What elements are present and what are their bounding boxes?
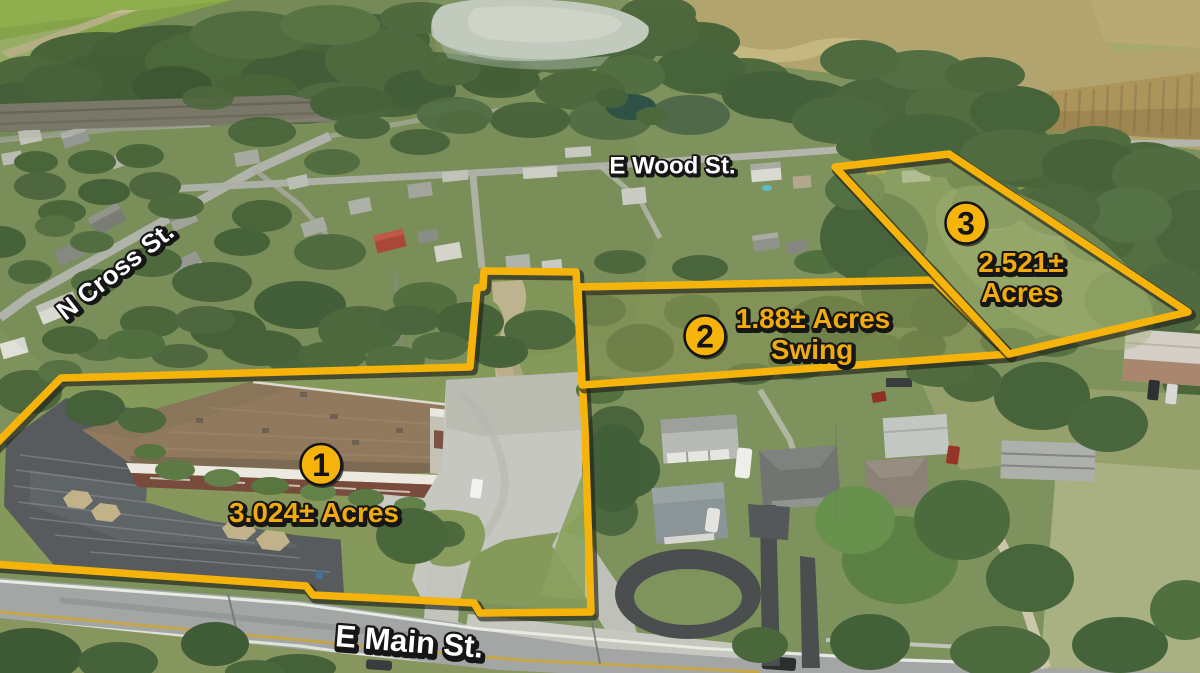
svg-text:2.521±: 2.521± — [978, 247, 1063, 278]
svg-text:3.024± Acres: 3.024± Acres — [229, 497, 399, 528]
svg-text:E Wood St.: E Wood St. — [609, 153, 735, 180]
svg-text:1.88± Acres: 1.88± Acres — [736, 303, 890, 334]
svg-text:Swing: Swing — [771, 334, 853, 365]
svg-text:Acres: Acres — [981, 277, 1059, 308]
svg-text:1: 1 — [312, 447, 330, 483]
svg-text:2: 2 — [696, 319, 714, 355]
svg-text:3: 3 — [957, 206, 975, 242]
